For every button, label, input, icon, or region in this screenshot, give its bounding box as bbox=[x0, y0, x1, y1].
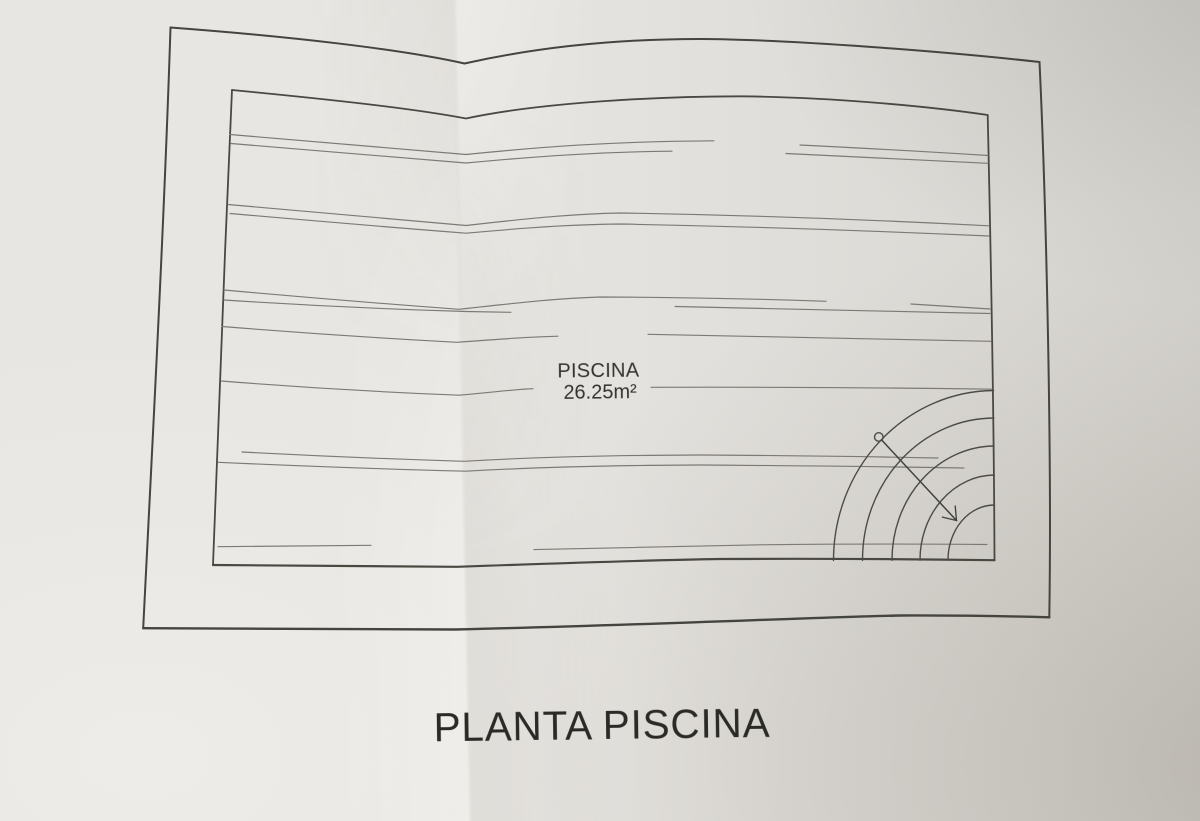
svg-text:26.25m²: 26.25m² bbox=[563, 381, 637, 404]
svg-text:PISCINA: PISCINA bbox=[557, 360, 640, 383]
svg-text:PLANTA PISCINA: PLANTA PISCINA bbox=[433, 700, 770, 751]
